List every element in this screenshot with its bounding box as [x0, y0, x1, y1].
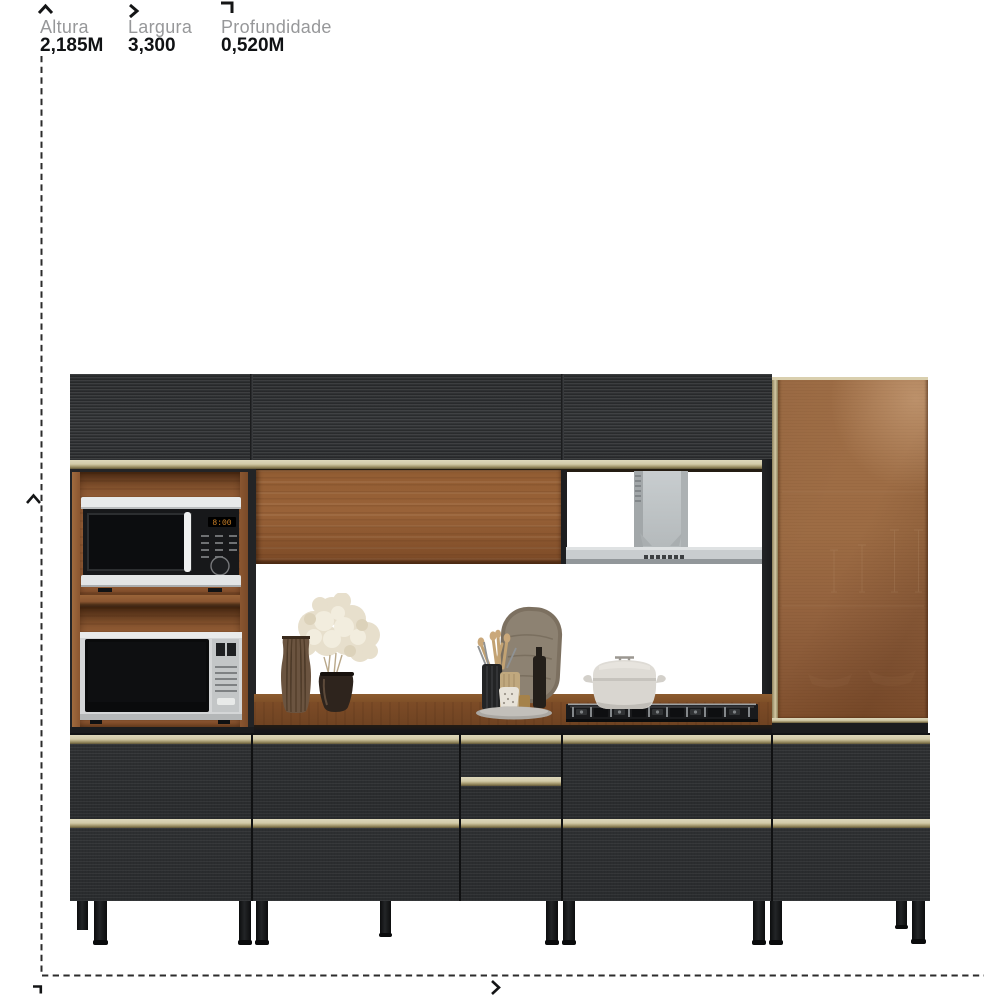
svg-text:8:00: 8:00	[212, 519, 231, 528]
